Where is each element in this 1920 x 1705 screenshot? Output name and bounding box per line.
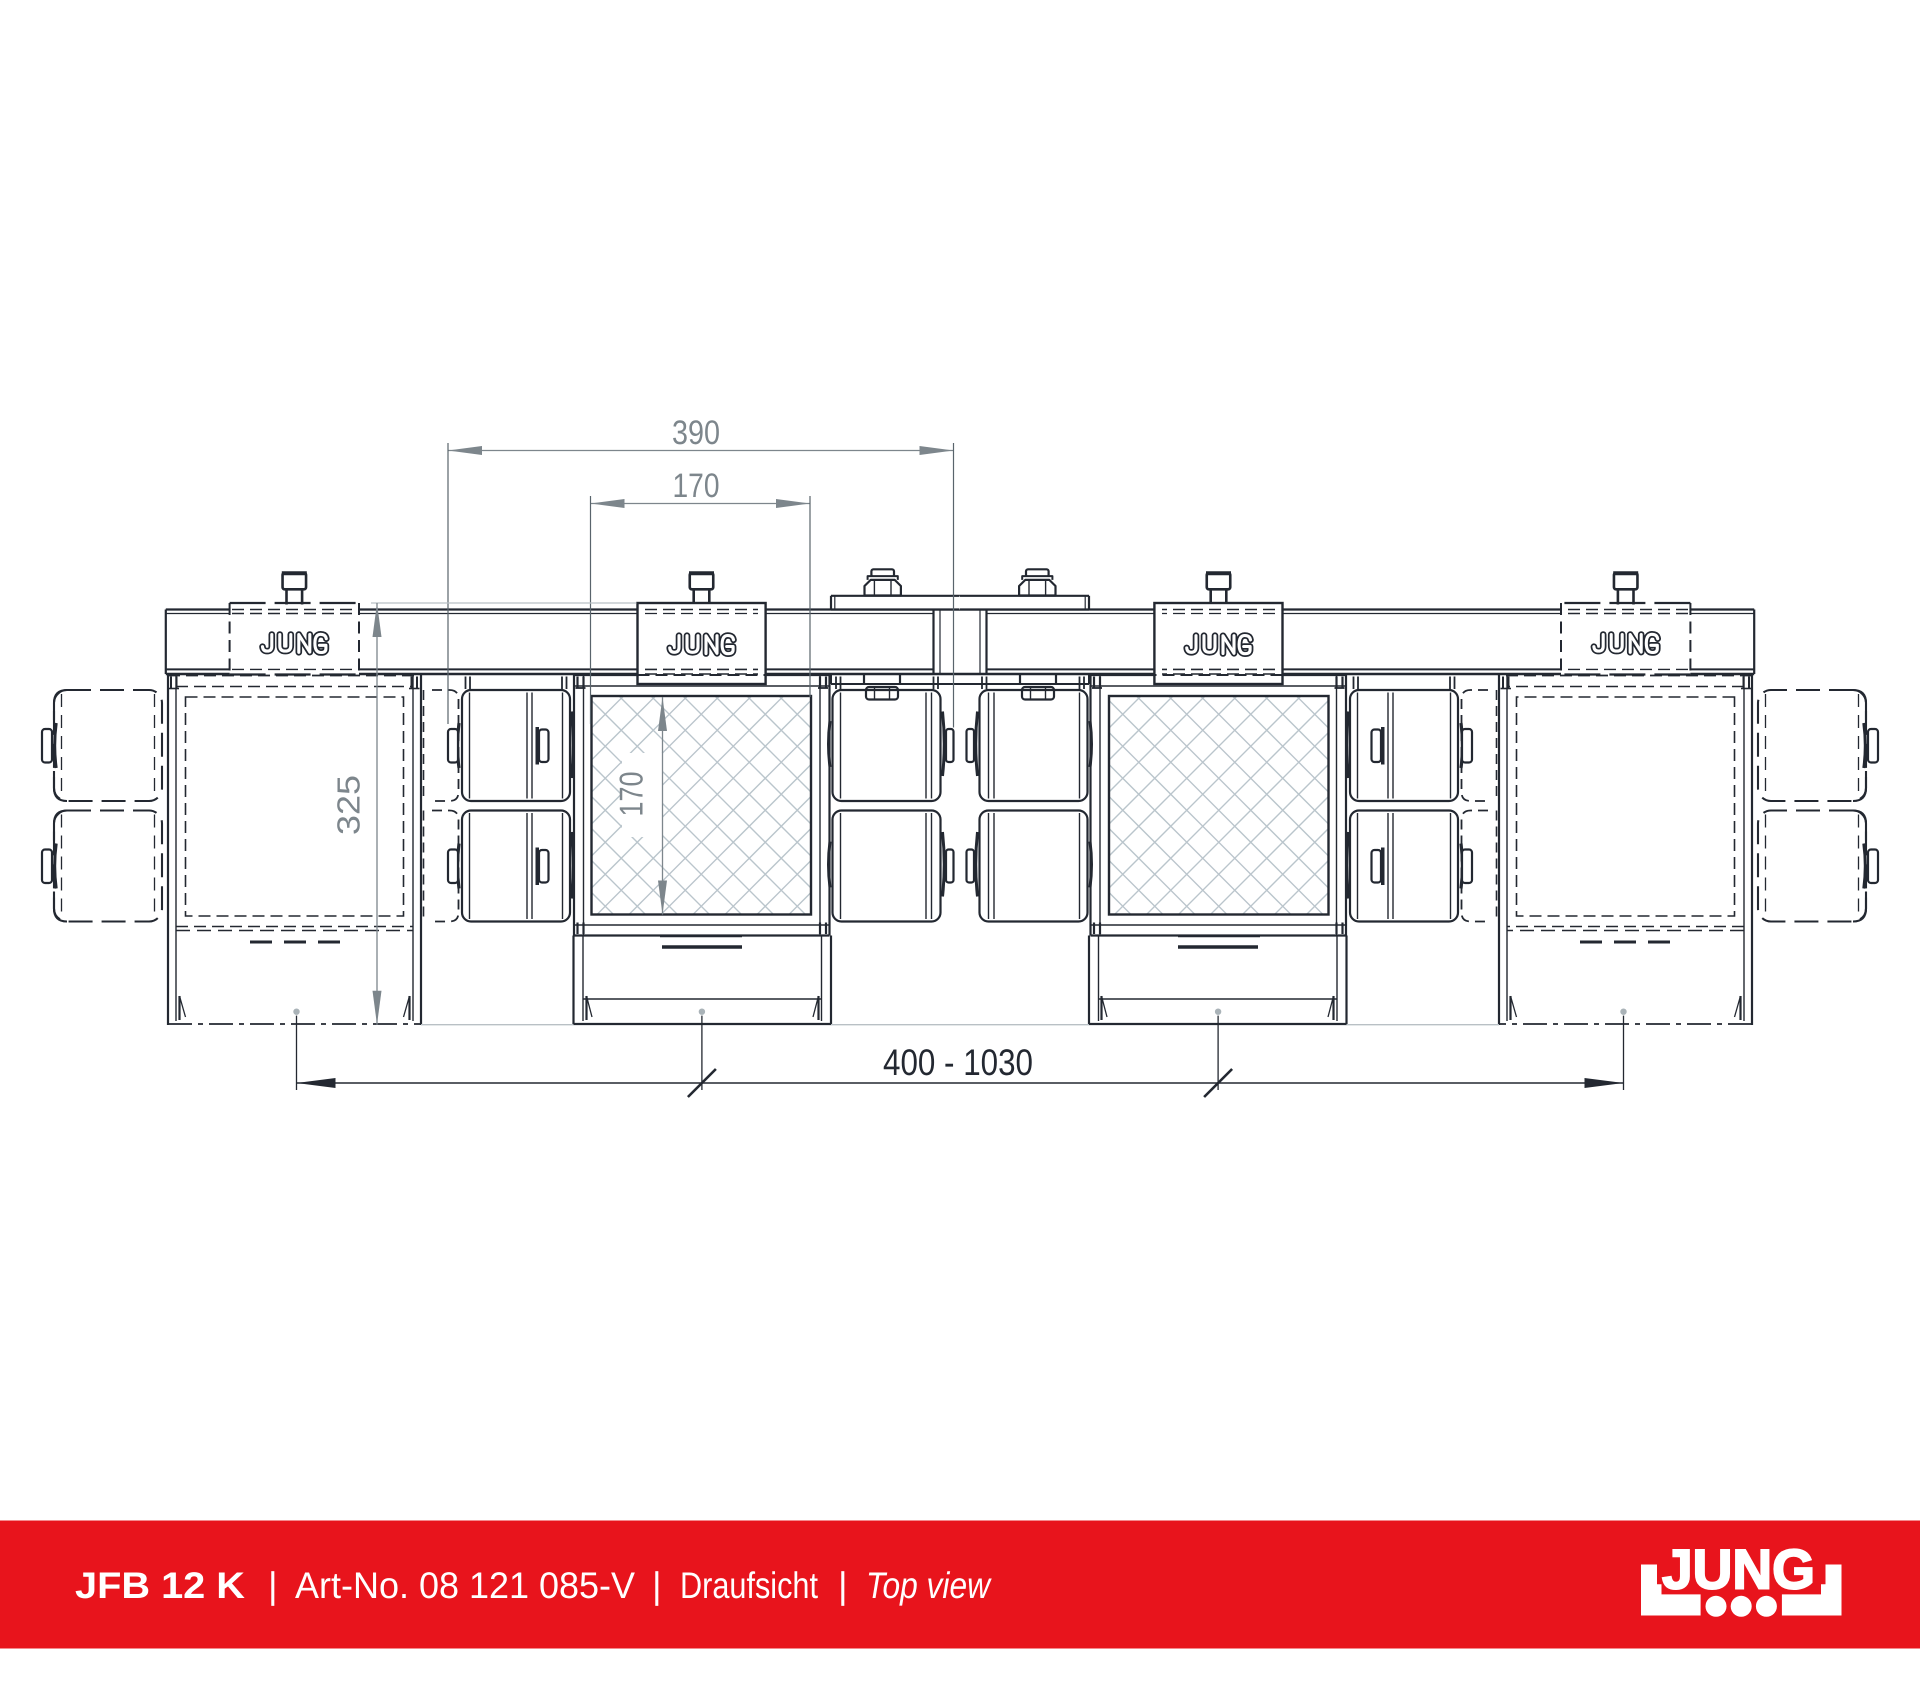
- svg-text:400 - 1030: 400 - 1030: [883, 1042, 1033, 1083]
- svg-text:JUNG: JUNG: [1662, 1538, 1815, 1601]
- svg-text:390: 390: [672, 414, 720, 452]
- svg-text:170: 170: [673, 467, 720, 505]
- svg-text:170: 170: [613, 772, 650, 817]
- svg-text:325: 325: [331, 775, 367, 835]
